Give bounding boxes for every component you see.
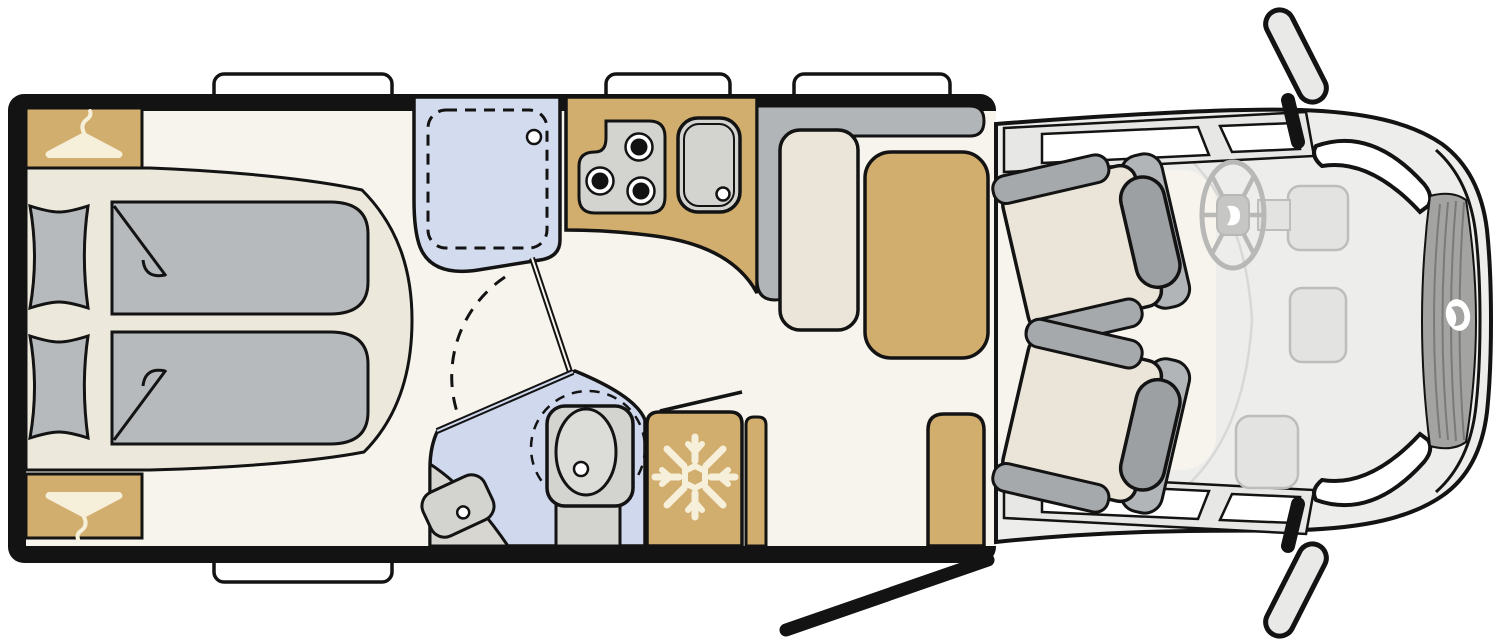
glovebox [1236, 416, 1298, 488]
duvet [112, 202, 368, 314]
dinette-table [865, 152, 988, 358]
motorhome-floorplan-canvas [0, 0, 1499, 640]
duvet [112, 332, 368, 444]
sink-drain [717, 188, 730, 201]
bench-cushion [780, 130, 858, 330]
dash-console [1288, 186, 1348, 250]
refrigerator [647, 412, 742, 546]
pillow [30, 336, 88, 438]
entry-door-open [786, 560, 988, 630]
dash-console [1290, 288, 1346, 362]
side-seat [928, 414, 984, 546]
burner [626, 134, 653, 161]
kitchen-sink [678, 118, 740, 212]
toilet-flush [574, 462, 588, 476]
cab [990, 5, 1491, 640]
floorplan-svg [0, 0, 1499, 640]
toilet-bowl [556, 409, 616, 495]
kitchen-cabinet [746, 417, 766, 546]
shower-drain [527, 130, 541, 144]
burner [628, 178, 655, 205]
burner [587, 168, 614, 195]
grille [1422, 194, 1476, 449]
pillow [30, 206, 88, 308]
